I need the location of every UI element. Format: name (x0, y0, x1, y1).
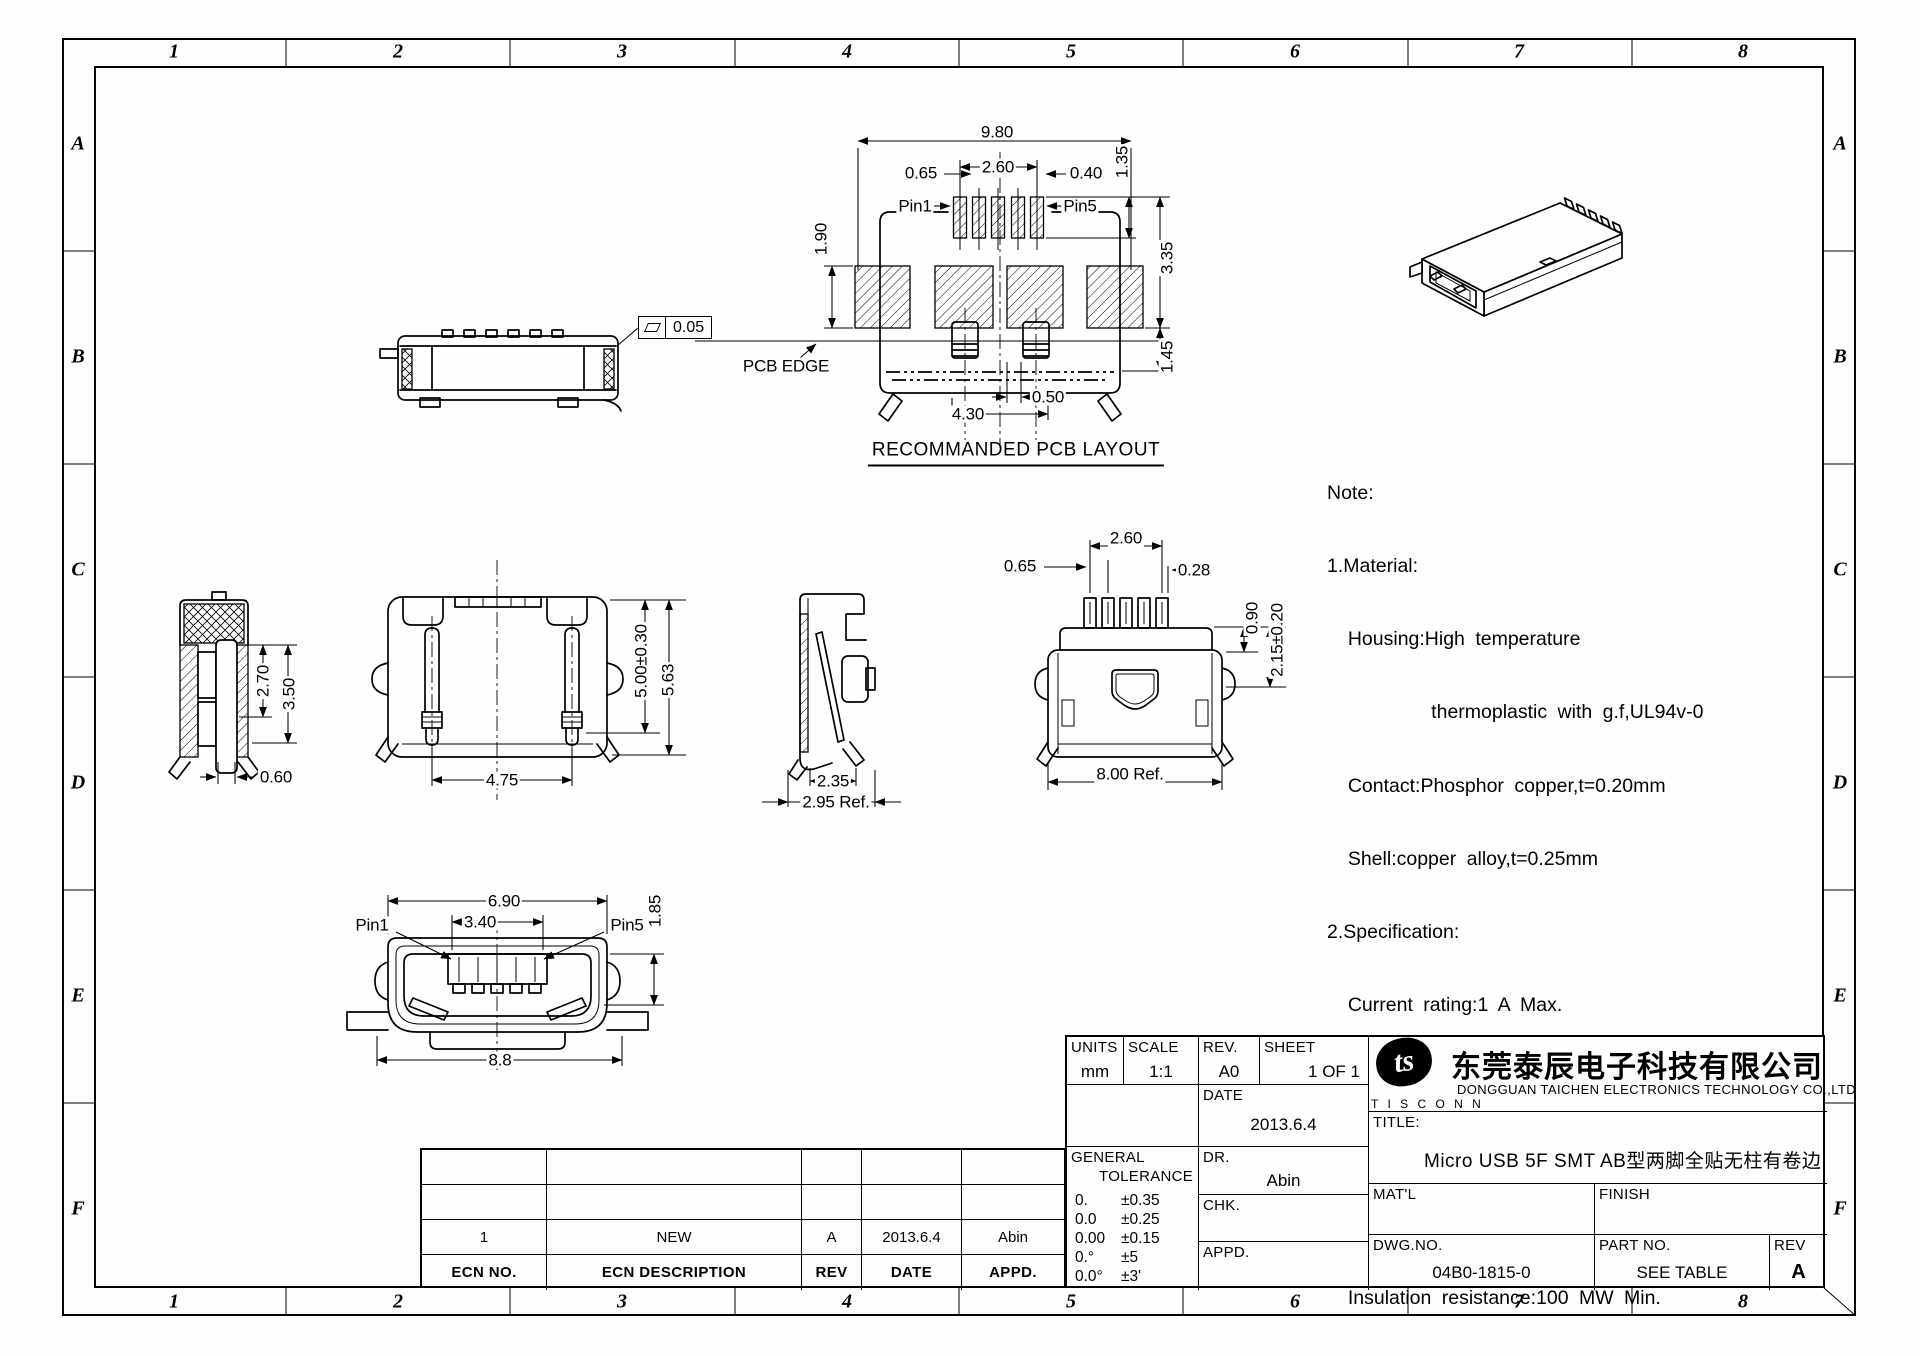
dim-label: 0.60 (258, 769, 294, 786)
pin1-label: Pin1 (353, 917, 390, 934)
units-label: UNITS (1071, 1039, 1118, 1056)
appd-cell: APPD. (1199, 1242, 1369, 1290)
note-line: Note: (1327, 481, 1816, 505)
dim-label: 2.70 (255, 663, 272, 699)
dwg-cell: DWG.NO. 04B0-1815-0 (1369, 1235, 1595, 1290)
flatness-icon (639, 317, 666, 338)
note-line: 2.Specification: (1327, 920, 1816, 944)
scale-cell: SCALE 1:1 (1124, 1037, 1199, 1085)
ecn-cell (862, 1185, 962, 1220)
ecn-cell: Abin (962, 1220, 1064, 1255)
dim-label: 3.50 (281, 676, 298, 712)
dim-label: 2.60 (980, 159, 1016, 176)
company-cell: T I S C O N N 东莞泰辰电子科技有限公司 DONGGUAN TAIC… (1369, 1037, 1827, 1112)
tol-value: ±0.15 (1121, 1229, 1160, 1248)
dim-label: 5.63 (660, 662, 677, 698)
matl-label: MAT'L (1373, 1186, 1416, 1203)
dr-cell: DR. Abin (1199, 1147, 1369, 1195)
view-section (169, 592, 297, 784)
back-dimensions (1044, 540, 1286, 790)
title-label: TITLE: (1373, 1114, 1420, 1131)
ecn-header: ECN NO. (422, 1255, 547, 1290)
rev2-label: REV (1774, 1237, 1806, 1254)
drawing-sheet: 1 2 3 4 5 6 7 8 1 2 3 4 5 6 7 8 A B C D … (0, 0, 1920, 1356)
pin5-label: Pin5 (1061, 198, 1098, 215)
tolerance-row: 0.°±5 (1075, 1248, 1192, 1267)
tolerance-row: 0.0°±3' (1075, 1267, 1192, 1286)
units-cell: UNITS mm (1067, 1037, 1124, 1085)
finish-label: FINISH (1599, 1186, 1650, 1203)
sheet-value: 1 OF 1 (1308, 1062, 1360, 1082)
company-name-en: DONGGUAN TAICHEN ELECTRONICS TECHNOLOGY … (1457, 1082, 1856, 1097)
dim-label: 1.45 (1159, 339, 1176, 375)
date-value: 2013.6.4 (1199, 1115, 1368, 1135)
part-label: PART NO. (1599, 1237, 1671, 1254)
dwg-label: DWG.NO. (1373, 1237, 1443, 1254)
dim-label: 0.28 (1176, 562, 1212, 579)
tol-value: ±5 (1121, 1248, 1138, 1267)
date-label: DATE (1203, 1087, 1243, 1104)
dim-label: 3.40 (462, 914, 498, 931)
ecn-cell: 1 (422, 1220, 547, 1255)
flatness-value: 0.05 (666, 317, 711, 338)
pcb-edge-label: PCB EDGE (741, 358, 831, 375)
dim-label: 8.8 (486, 1052, 513, 1069)
dim-label: 2.15±0.20 (1269, 601, 1286, 679)
dim-label: 5.00±0.30 (633, 622, 650, 700)
dim-label: 0.40 (1068, 165, 1104, 182)
general-label: GENERAL (1071, 1149, 1145, 1166)
logo-text: T I S C O N N (1371, 1097, 1484, 1111)
dim-label: 1.90 (813, 221, 830, 257)
drawing-title: Micro USB 5F SMT AB型两脚全贴无柱有卷边 (1424, 1146, 1821, 1173)
tol-value: ±0.25 (1121, 1210, 1160, 1229)
note-line: 1.Material: (1327, 554, 1816, 578)
dim-label: 2.35 (815, 773, 851, 790)
ecn-header: APPD. (962, 1255, 1064, 1290)
dr-value: Abin (1199, 1171, 1368, 1191)
note-line: Current rating:1 A Max. (1327, 993, 1816, 1017)
part-number: SEE TABLE (1595, 1263, 1769, 1283)
dim-label: 9.80 (979, 124, 1015, 141)
finish-cell: FINISH (1595, 1184, 1827, 1235)
dim-label: 0.65 (903, 165, 939, 182)
tolerance-cell: GENERAL TOLERANCE 0.±0.35 0.0±0.25 0.00±… (1067, 1147, 1199, 1290)
sheet-cell: SHEET 1 OF 1 (1260, 1037, 1369, 1085)
dim-label: 6.90 (486, 893, 522, 910)
dim-label: 8.00 Ref. (1094, 766, 1165, 783)
rev2-value: A (1770, 1261, 1827, 1284)
dim-label: 0.90 (1244, 600, 1261, 636)
units-value: mm (1067, 1062, 1123, 1082)
dim-label: 1.85 (647, 893, 664, 929)
smt-contact (562, 616, 582, 764)
ecn-cell: 2013.6.4 (862, 1220, 962, 1255)
dim-label: 4.75 (484, 772, 520, 789)
note-line: Housing:High temperature (1327, 627, 1816, 651)
ecn-cell (862, 1150, 962, 1185)
smt-contact (422, 616, 442, 764)
scale-value: 1:1 (1124, 1062, 1198, 1082)
rev-cell: REV. A0 (1199, 1037, 1260, 1085)
tol-basis: 0. (1075, 1191, 1121, 1210)
pin5-label: Pin5 (608, 917, 645, 934)
sheet-label: SHEET (1264, 1039, 1316, 1056)
ecn-header: REV (802, 1255, 862, 1290)
ecn-cell (802, 1150, 862, 1185)
ecn-header: DATE (862, 1255, 962, 1290)
appd-label: APPD. (1203, 1244, 1250, 1261)
dim-label: 0.50 (1030, 389, 1066, 406)
rev-label: REV. (1203, 1039, 1238, 1056)
solder-pads (855, 266, 1143, 328)
part-cell: PART NO. SEE TABLE (1595, 1235, 1770, 1290)
scale-label: SCALE (1128, 1039, 1179, 1056)
pin-pads (954, 188, 1044, 250)
matl-cell: MAT'L (1369, 1184, 1595, 1235)
ecn-cell (802, 1185, 862, 1220)
flatness-callout: 0.05 (638, 316, 712, 339)
company-name-cn: 东莞泰辰电子科技有限公司 (1451, 1042, 1823, 1086)
title-cell: TITLE: Micro USB 5F SMT AB型两脚全贴无柱有卷边 (1369, 1112, 1827, 1184)
dim-label: 2.60 (1108, 530, 1144, 547)
tolerance-row: 0.0±0.25 (1075, 1210, 1192, 1229)
chk-label: CHK. (1203, 1197, 1240, 1214)
tol-basis: 0.0 (1075, 1210, 1121, 1229)
pin1-label: Pin1 (896, 198, 933, 215)
note-line: thermoplastic with g.f,UL94v-0 (1327, 700, 1816, 724)
ecn-table: 1 NEW A 2013.6.4 Abin ECN NO. ECN DESCRI… (420, 1148, 1066, 1288)
date-cell: DATE 2013.6.4 (1199, 1085, 1369, 1147)
tolerance-label: TOLERANCE (1099, 1168, 1193, 1185)
ecn-cell (547, 1150, 802, 1185)
view-isometric (1410, 198, 1622, 316)
pcb-layout-title: RECOMMANDED PCB LAYOUT (868, 440, 1164, 467)
ecn-cell: NEW (547, 1220, 802, 1255)
back-pins (1084, 598, 1168, 628)
tol-basis: 0.° (1075, 1248, 1121, 1267)
ecn-cell (547, 1185, 802, 1220)
dr-label: DR. (1203, 1149, 1230, 1166)
ecn-cell (422, 1185, 547, 1220)
tol-basis: 0.0° (1075, 1267, 1121, 1286)
tolerance-row: 0.00±0.15 (1075, 1229, 1192, 1248)
tolerance-row: 0.±0.35 (1075, 1191, 1192, 1210)
ecn-cell (962, 1185, 1064, 1220)
dwg-number: 04B0-1815-0 (1369, 1263, 1594, 1283)
view-pcb-layout (695, 141, 1170, 448)
tol-basis: 0.00 (1075, 1229, 1121, 1248)
dim-label: 3.35 (1159, 240, 1176, 276)
dim-label: 1.35 (1114, 144, 1131, 180)
view-back (1035, 540, 1286, 790)
tol-value: ±3' (1121, 1267, 1141, 1286)
title-block: UNITS mm SCALE 1:1 REV. A0 SHEET 1 OF 1 … (1065, 1035, 1825, 1288)
note-line: Shell:copper alloy,t=0.25mm (1327, 847, 1816, 871)
dim-label: 0.65 (1002, 558, 1038, 575)
logo-ts: ts (1392, 1044, 1417, 1080)
dim-label: 4.30 (950, 406, 986, 423)
ecn-header: ECN DESCRIPTION (547, 1255, 802, 1290)
view-profile (380, 328, 638, 411)
projection-cell (1067, 1085, 1199, 1147)
rev2-cell: REV A (1770, 1235, 1827, 1290)
ecn-cell (962, 1150, 1064, 1185)
dim-label: 2.95 Ref. (800, 794, 871, 811)
ecn-cell: A (802, 1220, 862, 1255)
rev-value: A0 (1199, 1062, 1259, 1082)
ecn-cell (422, 1150, 547, 1185)
chk-cell: CHK. (1199, 1195, 1369, 1242)
tol-value: ±0.35 (1121, 1191, 1160, 1210)
tolerance-table: 0.±0.35 0.0±0.25 0.00±0.15 0.°±5 0.0°±3' (1075, 1191, 1192, 1286)
note-line: Contact:Phosphor copper,t=0.20mm (1327, 774, 1816, 798)
